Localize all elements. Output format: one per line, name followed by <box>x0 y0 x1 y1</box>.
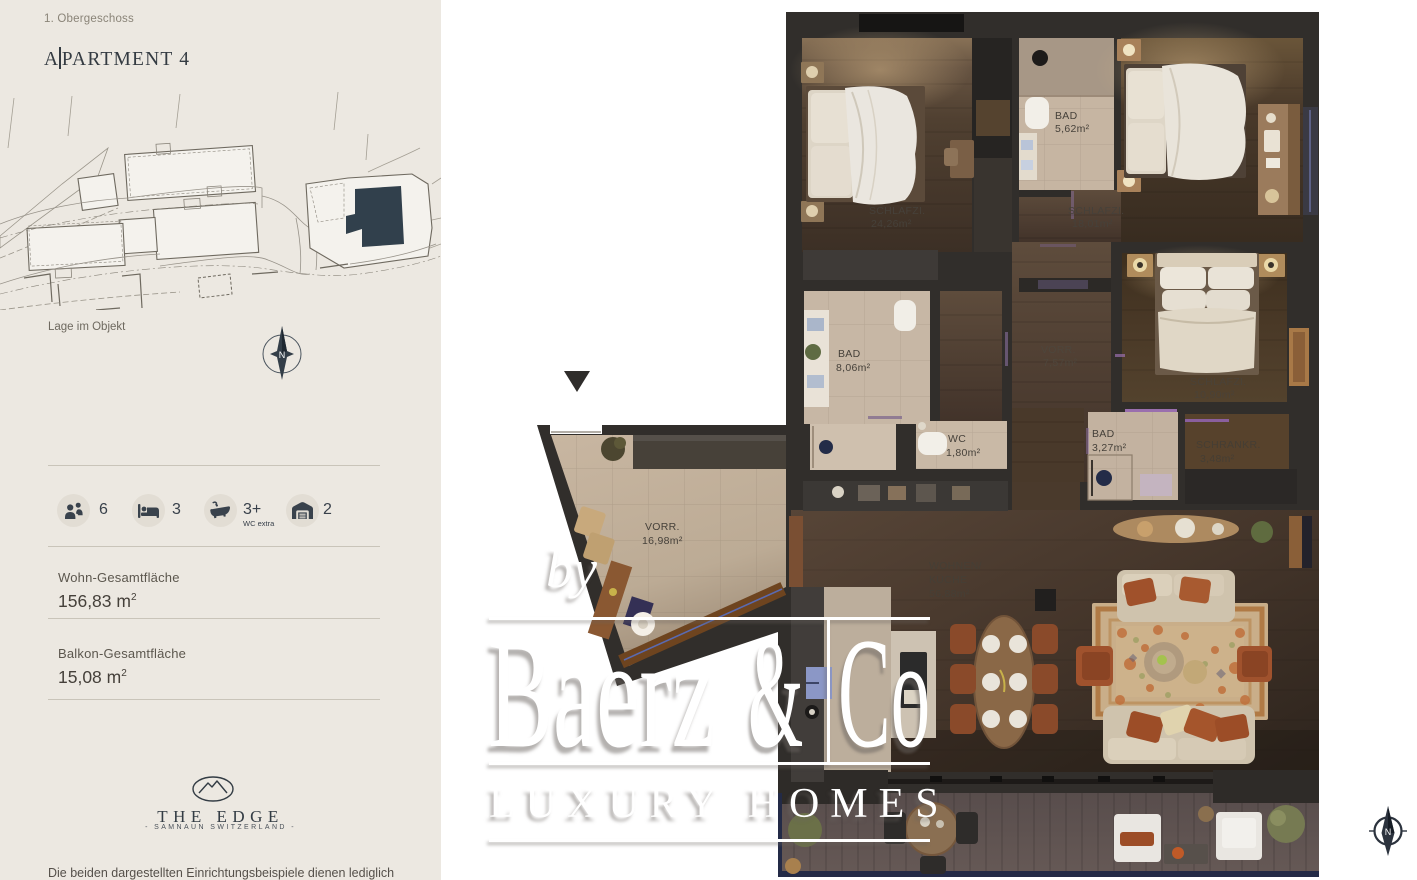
svg-text:1,80m²: 1,80m² <box>946 447 981 459</box>
svg-text:10,90m²: 10,90m² <box>1194 389 1235 401</box>
svg-text:18,01m²: 18,01m² <box>1072 218 1113 230</box>
svg-text:BAD: BAD <box>1092 428 1115 440</box>
svg-text:24,26m²: 24,26m² <box>871 218 912 230</box>
svg-text:56,88m²: 56,88m² <box>929 588 970 600</box>
svg-text:VORR.: VORR. <box>1041 344 1076 356</box>
svg-text:SCHLAFZI.: SCHLAFZI. <box>1068 205 1124 217</box>
svg-text:3,27m²: 3,27m² <box>1092 442 1127 454</box>
svg-text:7,57m²: 7,57m² <box>1043 357 1078 369</box>
svg-text:WOHNEN/: WOHNEN/ <box>929 560 982 572</box>
svg-text:KÜCHE: KÜCHE <box>929 574 967 586</box>
svg-text:N: N <box>1385 827 1392 837</box>
svg-text:VORR.: VORR. <box>645 521 680 533</box>
svg-text:8,06m²: 8,06m² <box>836 362 871 374</box>
svg-text:3,48m²: 3,48m² <box>1200 453 1235 465</box>
svg-text:SCHLAFZI.: SCHLAFZI. <box>869 205 925 217</box>
svg-text:BAD: BAD <box>838 348 861 360</box>
svg-text:SCHLAFZI.: SCHLAFZI. <box>1190 376 1246 388</box>
svg-text:16,98m²: 16,98m² <box>642 535 683 547</box>
svg-text:BAD: BAD <box>1055 110 1078 122</box>
svg-text:5,62m²: 5,62m² <box>1055 123 1090 135</box>
svg-text:SCHRANKR.: SCHRANKR. <box>1196 439 1261 451</box>
svg-text:WC: WC <box>948 433 966 445</box>
